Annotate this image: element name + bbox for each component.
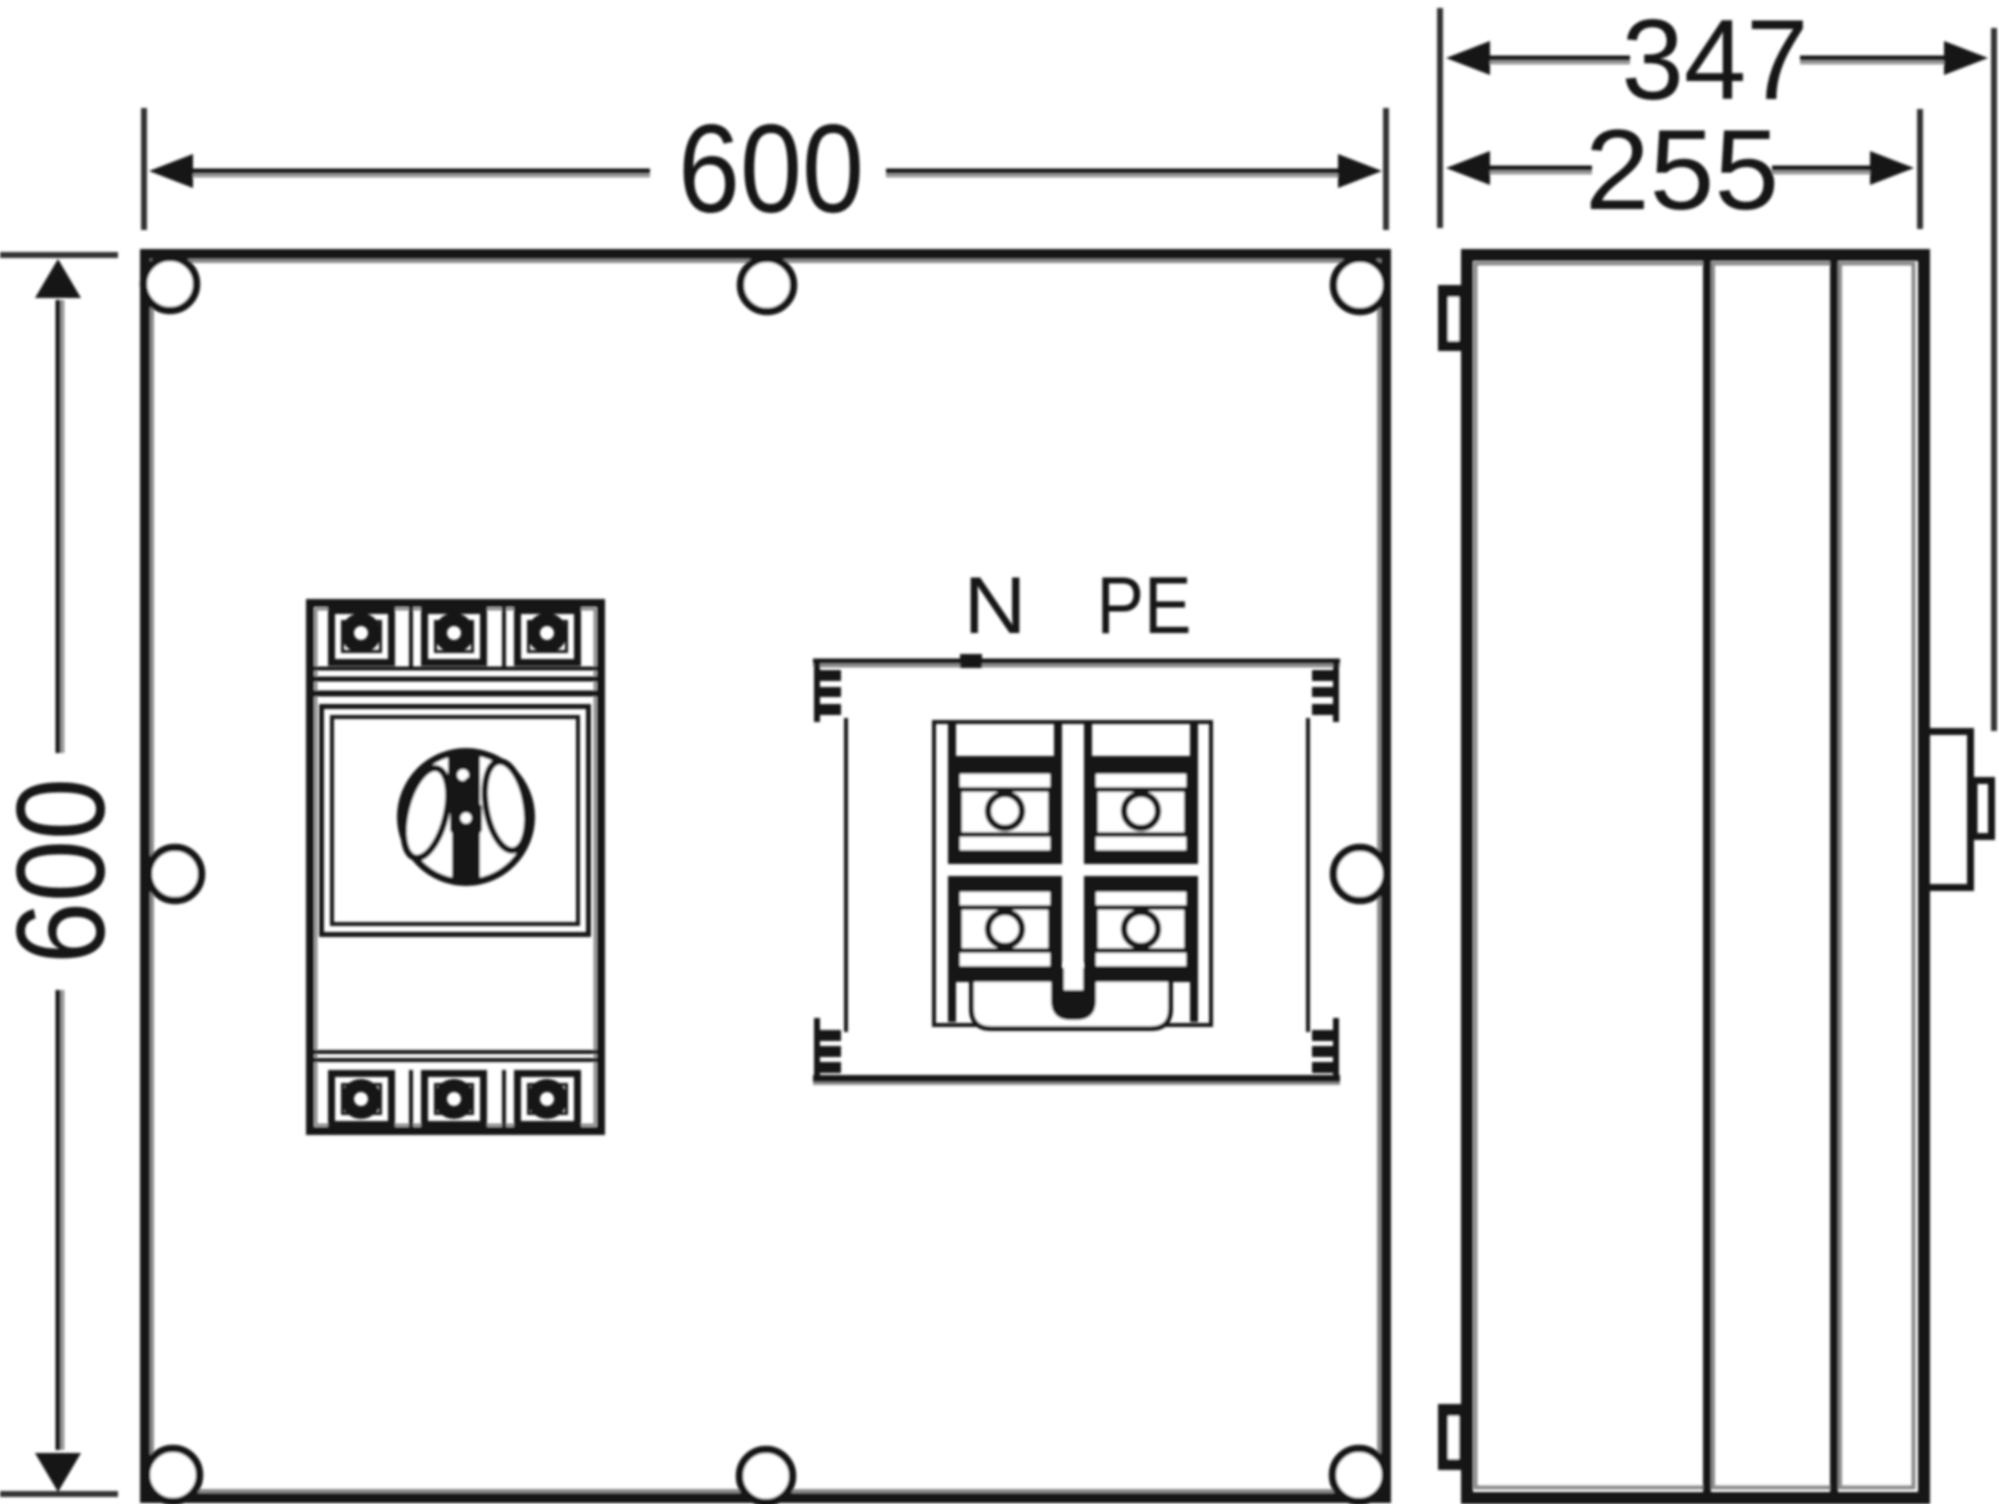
svg-text:600: 600 (0, 778, 131, 964)
svg-text:N: N (964, 561, 1027, 651)
svg-text:600: 600 (678, 100, 864, 239)
svg-text:PE: PE (1097, 561, 1192, 651)
svg-text:255: 255 (1585, 107, 1779, 234)
svg-text:347: 347 (1622, 0, 1809, 124)
